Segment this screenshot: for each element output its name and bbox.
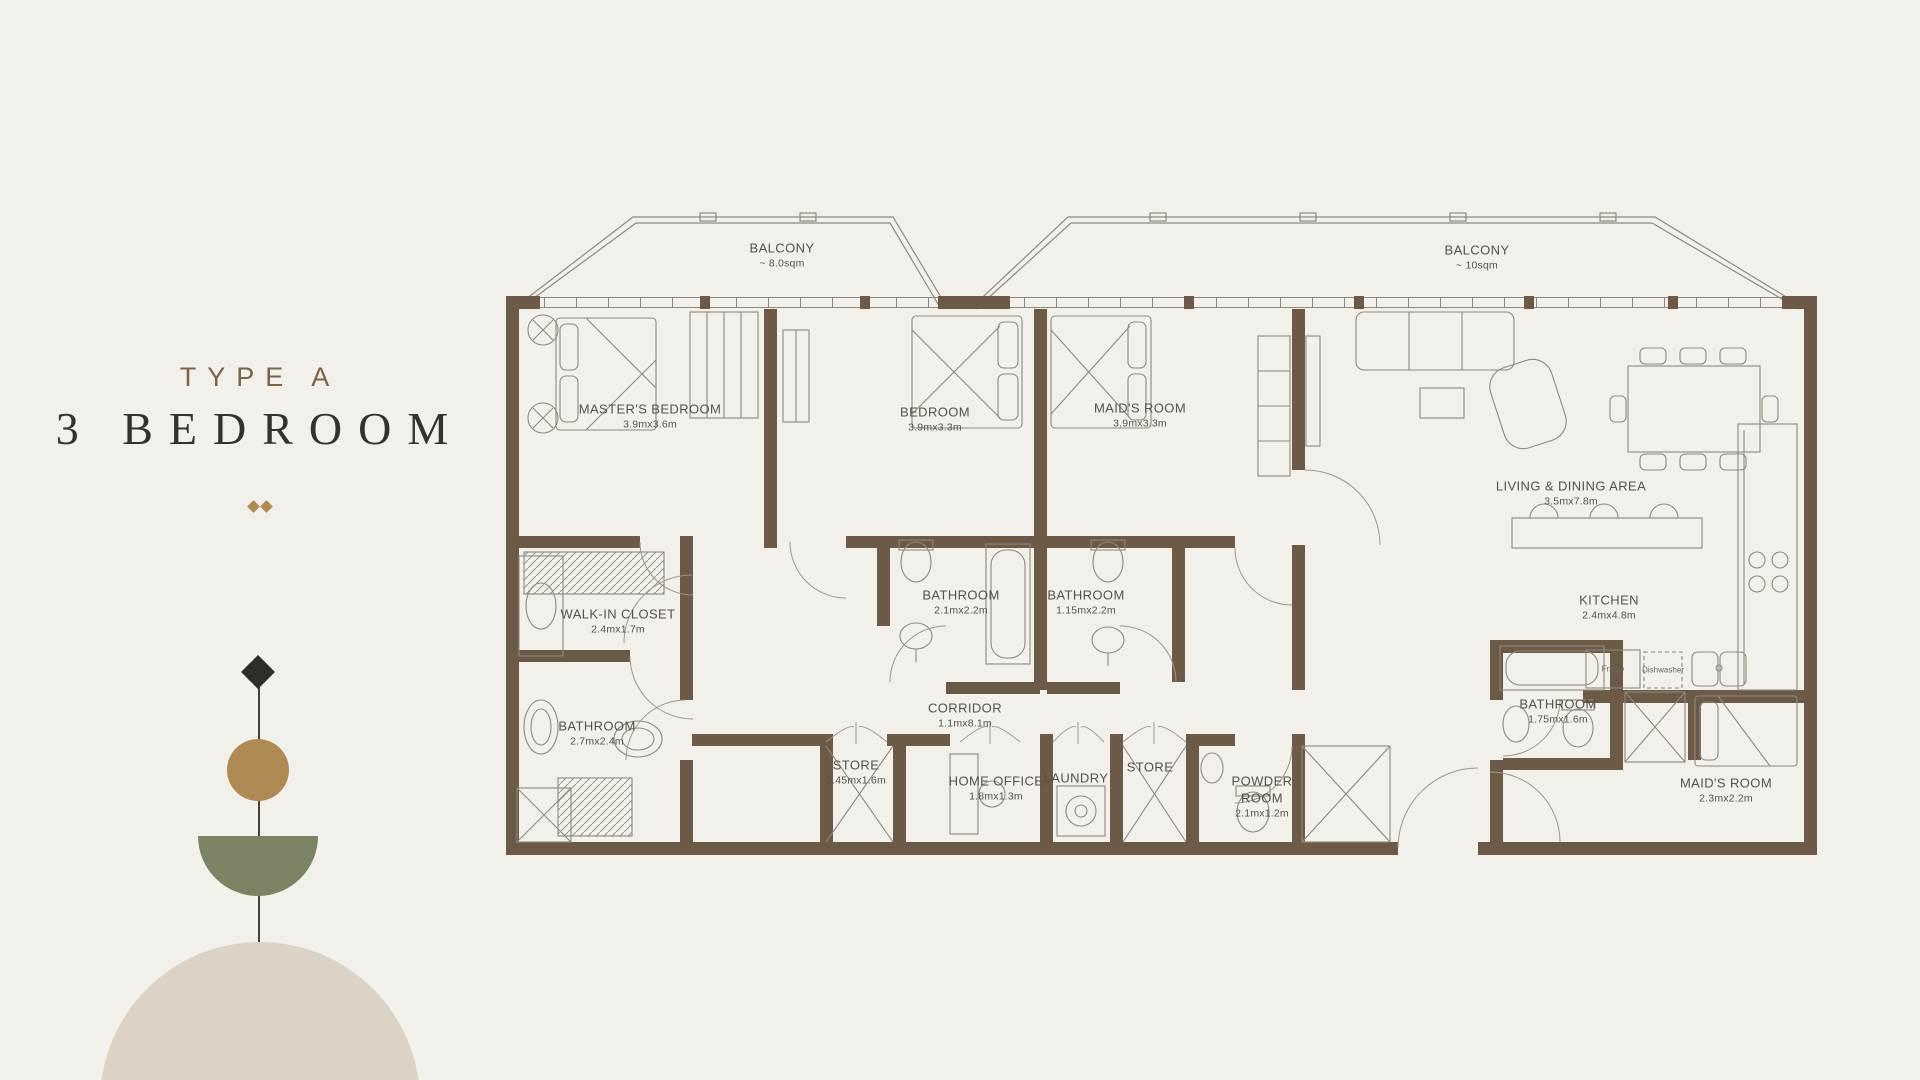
room-label-maids-room-2: MAID'S ROOM2.3mx2.2m	[1680, 776, 1772, 807]
brochure-page: TYPE A 3 BEDROOM	[0, 0, 1920, 1080]
room-label-master-bathroom: BATHROOM2.7mx2.4m	[558, 719, 635, 750]
room-label-living-dining: LIVING & DINING AREA3.5mx7.8m	[1496, 479, 1646, 510]
room-label-corridor: CORRIDOR1.1mx8.1m	[928, 701, 1002, 732]
room-label-maids-room-1: MAID'S ROOM3.9mx3.3m	[1094, 401, 1186, 432]
room-label-store-1: STORE0.45mx1.6m	[826, 758, 886, 789]
room-label-powder-room: POWDER ROOM2.1mx1.2m	[1220, 773, 1304, 820]
room-label-store-2: STORE	[1127, 760, 1174, 777]
room-label-laundry: LAUNDRY	[1044, 771, 1109, 788]
room-label-balcony-right: BALCONY~ 10sqm	[1445, 243, 1510, 274]
window-glazing	[540, 297, 1782, 308]
room-label-walkin-closet: WALK-IN CLOSET2.4mx1.7m	[561, 607, 676, 638]
room-label-home-office: HOME OFFICE1.8mx1.3m	[949, 774, 1044, 805]
balcony-outlines	[513, 213, 1806, 309]
room-label-bedroom: BEDROOM3.9mx3.3m	[900, 405, 970, 436]
room-label-bathroom-4: BATHROOM1.75mx1.6m	[1519, 697, 1596, 728]
room-label-master-bedroom: MASTER'S BEDROOM3.9mx3.6m	[579, 402, 722, 433]
room-label-bathroom-2: BATHROOM1.15mx2.2m	[1047, 588, 1124, 619]
room-label-balcony-left: BALCONY~ 8.0sqm	[750, 241, 815, 272]
fridge-label: Fridge	[1602, 665, 1625, 674]
dishwasher-label: Dishwasher	[1642, 666, 1684, 675]
floor-plan-drawing	[0, 0, 1920, 1080]
room-label-bathroom-1: BATHROOM2.1mx2.2m	[922, 588, 999, 619]
room-label-kitchen: KITCHEN2.4mx4.8m	[1579, 593, 1639, 624]
